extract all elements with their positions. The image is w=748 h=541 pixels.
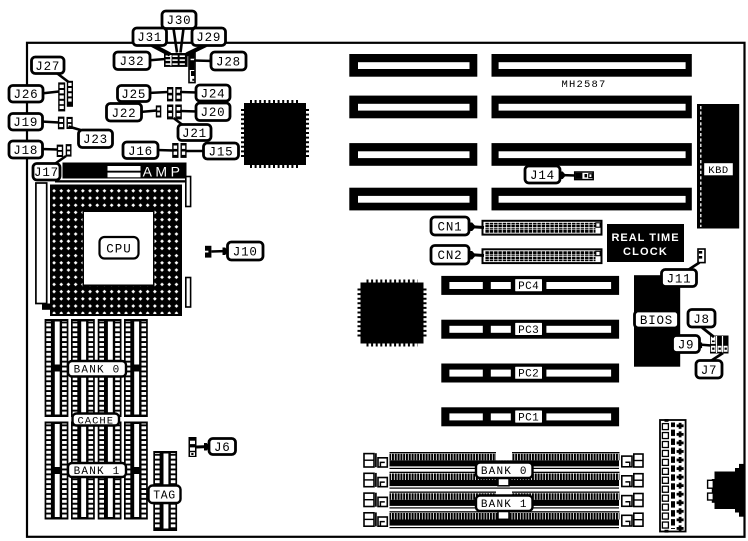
svg-text:J23: J23 [83,133,108,147]
svg-text:REAL TIME: REAL TIME [611,232,679,244]
svg-text:PC2: PC2 [518,369,539,381]
svg-text:BANK 0: BANK 0 [481,466,528,478]
svg-text:J17: J17 [34,166,59,180]
svg-text:PC4: PC4 [518,281,539,293]
svg-text:J6: J6 [214,441,231,455]
svg-text:J14: J14 [530,169,555,183]
svg-text:PC1: PC1 [518,413,539,425]
svg-text:J19: J19 [13,116,38,130]
svg-text:J32: J32 [120,55,145,69]
svg-text:J25: J25 [121,88,146,102]
svg-text:J31: J31 [137,31,162,45]
svg-text:J27: J27 [35,60,60,74]
svg-text:J10: J10 [233,246,258,260]
svg-text:J9: J9 [678,339,695,353]
svg-text:J15: J15 [209,146,234,160]
svg-text:PC3: PC3 [518,325,539,337]
svg-text:J24: J24 [201,88,226,102]
svg-text:BIOS: BIOS [640,314,673,328]
svg-text:BANK 1: BANK 1 [74,466,121,478]
svg-text:BANK 0: BANK 0 [74,365,121,377]
svg-text:J26: J26 [14,88,39,102]
svg-text:CPU: CPU [106,243,132,257]
svg-text:J21: J21 [182,127,207,141]
svg-text:CLOCK: CLOCK [623,246,668,258]
svg-text:J28: J28 [216,56,241,70]
svg-text:J18: J18 [13,144,38,158]
svg-text:J30: J30 [167,14,192,28]
svg-text:KBD: KBD [708,165,728,177]
svg-text:AMP: AMP [143,163,184,179]
svg-text:J20: J20 [201,106,226,120]
svg-text:J22: J22 [112,107,137,121]
svg-text:BANK 1: BANK 1 [481,499,528,511]
svg-text:J7: J7 [701,364,718,378]
svg-text:J8: J8 [693,313,710,327]
svg-text:J11: J11 [667,273,692,287]
svg-text:TAG: TAG [153,489,176,502]
svg-text:J16: J16 [128,145,153,159]
svg-text:MH2587: MH2587 [561,79,606,91]
svg-text:J29: J29 [196,31,221,45]
svg-text:CN1: CN1 [438,221,463,235]
svg-text:CACHE: CACHE [77,415,114,427]
svg-text:CN2: CN2 [438,249,463,263]
